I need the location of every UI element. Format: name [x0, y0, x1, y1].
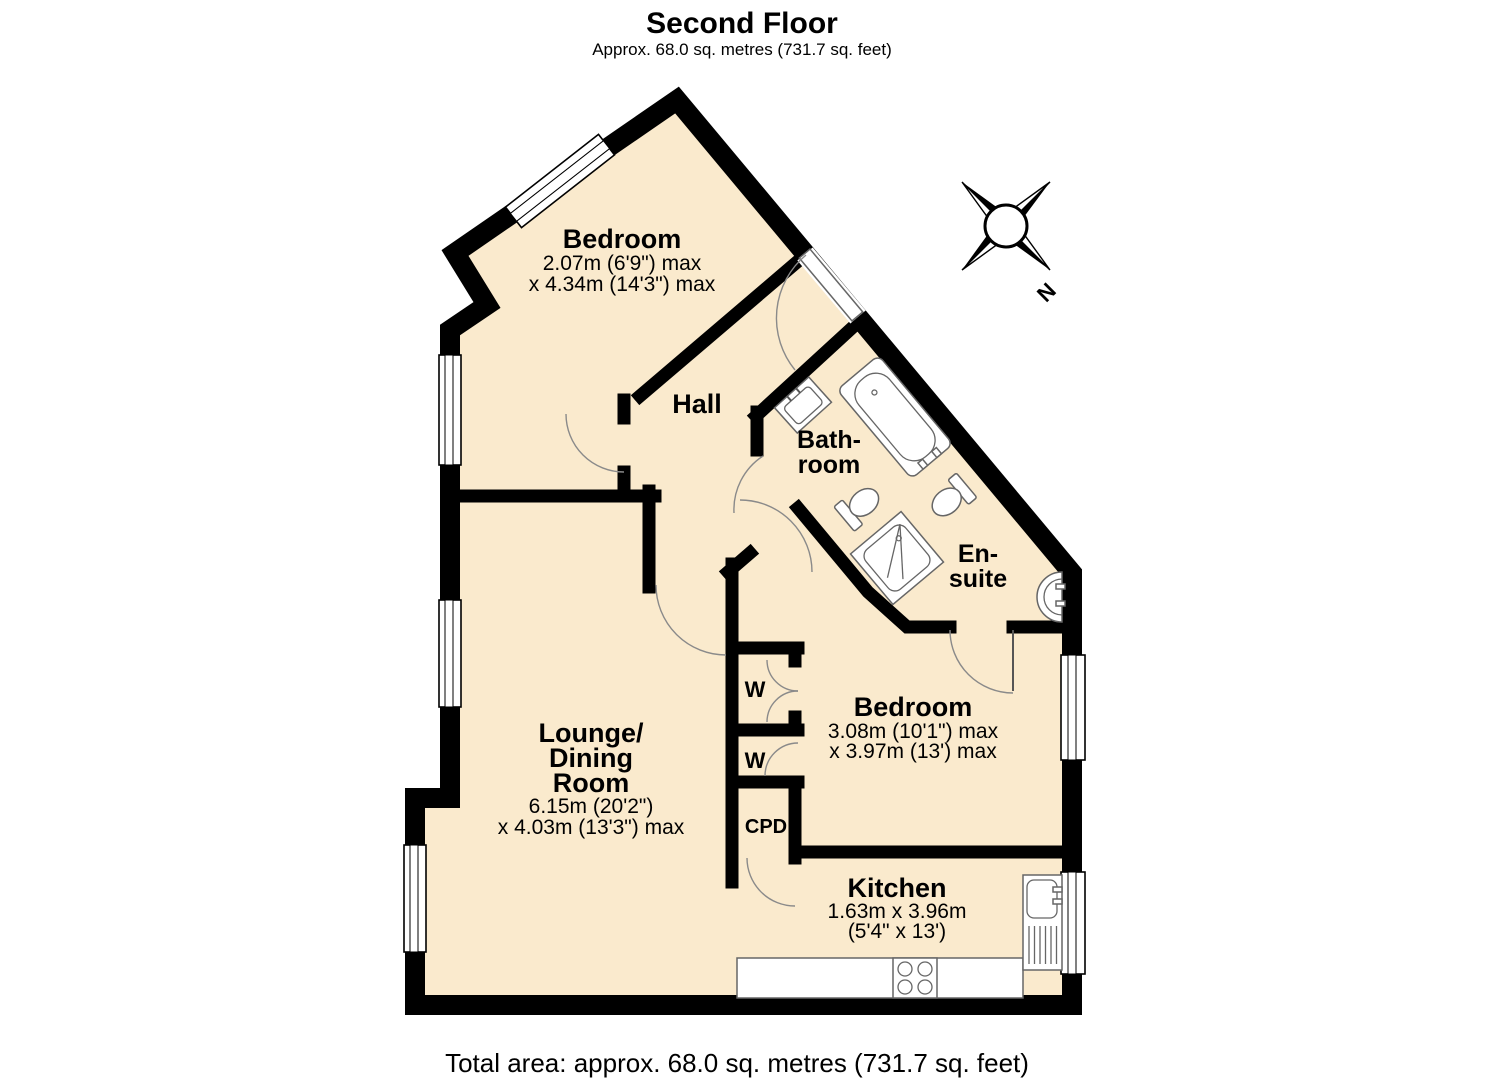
window — [1061, 655, 1085, 760]
page-subtitle: Approx. 68.0 sq. metres (731.7 sq. feet) — [592, 40, 892, 59]
kitchen-sink-icon — [1023, 875, 1062, 970]
bedroom-right-label: Bedroom — [854, 692, 973, 722]
total-area-label: Total area: approx. 68.0 sq. metres (731… — [445, 1048, 1029, 1078]
lounge-label-line3: Room — [553, 768, 630, 798]
kitchen-dim2: (5'4" x 13') — [848, 920, 946, 943]
floorplan-page: Bedroom 2.07m (6'9") max x 4.34m (14'3")… — [0, 0, 1485, 1080]
bedroom-top-label: Bedroom — [563, 224, 682, 254]
north-label: N — [1032, 278, 1061, 307]
window — [404, 845, 426, 952]
page-title: Second Floor — [646, 7, 838, 40]
floorplan: Bedroom 2.07m (6'9") max x 4.34m (14'3")… — [404, 100, 1085, 1005]
lounge-dim1: 6.15m (20'2") — [529, 795, 654, 818]
bathroom-label-line2: room — [798, 451, 861, 479]
hob-icon — [893, 958, 937, 998]
ensuite-label-line2: suite — [949, 565, 1007, 593]
cupboard-label: CPD — [745, 816, 787, 838]
hall-label: Hall — [672, 389, 722, 419]
bedroom-top-dim2: x 4.34m (14'3") max — [529, 273, 716, 296]
window — [439, 600, 461, 707]
wardrobe2-label: W — [745, 748, 766, 773]
lounge-dim2: x 4.03m (13'3") max — [498, 816, 685, 839]
bathroom-label-line1: Bath- — [797, 426, 861, 454]
wardrobe1-label: W — [745, 677, 766, 702]
compass-icon: N — [962, 182, 1061, 307]
bedroom-top-dim1: 2.07m (6'9") max — [543, 252, 702, 275]
bedroom-right-dim2: x 3.97m (13') max — [829, 740, 997, 763]
kitchen-counter — [737, 958, 1023, 998]
window — [439, 355, 461, 465]
kitchen-label: Kitchen — [847, 873, 946, 903]
floorplan-canvas: Bedroom 2.07m (6'9") max x 4.34m (14'3")… — [0, 0, 1485, 1080]
ensuite-label-line1: En- — [958, 540, 998, 568]
window — [1061, 872, 1085, 974]
